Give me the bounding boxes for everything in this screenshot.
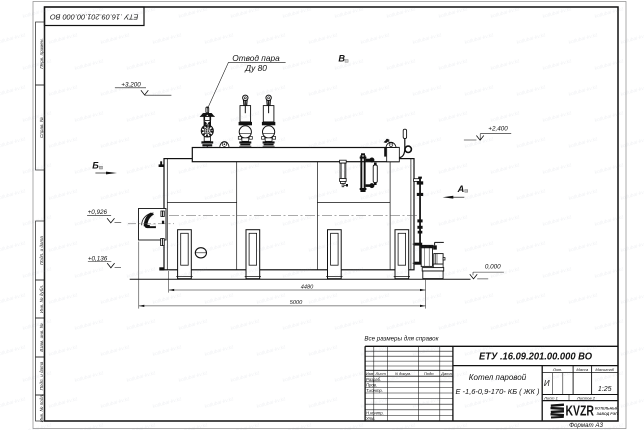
svg-text:Масштаб: Масштаб	[595, 367, 614, 372]
svg-text:Инв. № дубл.: Инв. № дубл.	[39, 285, 44, 313]
svg-text:Лист: Лист	[375, 371, 387, 376]
svg-text:Лит.: Лит.	[552, 367, 562, 372]
svg-text:Взам. инв. №: Взам. инв. №	[39, 323, 44, 351]
svg-text:Т.контр.: Т.контр.	[366, 388, 383, 393]
svg-text:Утв.: Утв.	[366, 416, 376, 421]
svg-text:Разраб.: Разраб.	[366, 377, 381, 382]
svg-text:Е -1,6-0,9-170- КБ ( ЖК ): Е -1,6-0,9-170- КБ ( ЖК )	[456, 387, 540, 396]
svg-text:В: В	[338, 54, 345, 64]
svg-text:Изм: Изм	[366, 371, 374, 376]
svg-text:ЗАВОД РЭП: ЗАВОД РЭП	[597, 412, 619, 416]
svg-text:+0,136: +0,136	[88, 255, 108, 262]
svg-text:Пров.: Пров.	[366, 383, 377, 388]
svg-text:1:25: 1:25	[598, 386, 612, 393]
svg-text:КОТЕЛЬНЫЙ: КОТЕЛЬНЫЙ	[595, 406, 619, 410]
svg-text:4480: 4480	[301, 284, 314, 290]
svg-text:Н.контр.: Н.контр.	[366, 411, 384, 416]
svg-text:А: А	[457, 184, 465, 194]
svg-text:0,000: 0,000	[485, 264, 501, 271]
svg-text:+2,400: +2,400	[488, 126, 508, 133]
svg-text:Все размеры для справок: Все размеры для справок	[364, 336, 439, 343]
svg-text:5000: 5000	[290, 300, 303, 306]
svg-text:Подп. и дата: Подп. и дата	[39, 236, 44, 265]
svg-text:Подп.: Подп.	[424, 371, 435, 376]
svg-text:Справ. №: Справ. №	[39, 117, 44, 138]
svg-text:Инв. № подл.: Инв. № подл.	[39, 394, 44, 423]
svg-text:Масса: Масса	[576, 367, 589, 372]
